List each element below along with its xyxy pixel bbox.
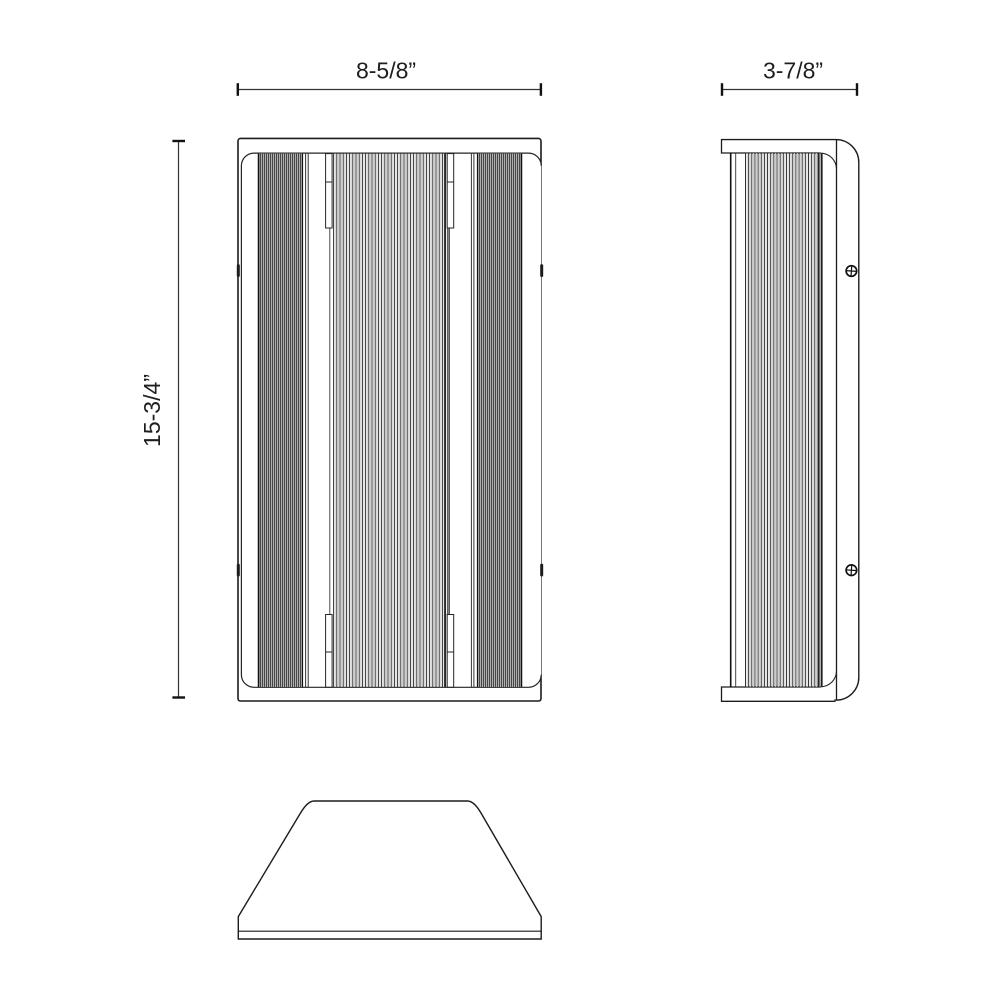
svg-text:3-7/8”: 3-7/8” [763, 58, 823, 84]
svg-text:15-3/4”: 15-3/4” [139, 374, 165, 447]
svg-text:8-5/8”: 8-5/8” [356, 58, 416, 84]
